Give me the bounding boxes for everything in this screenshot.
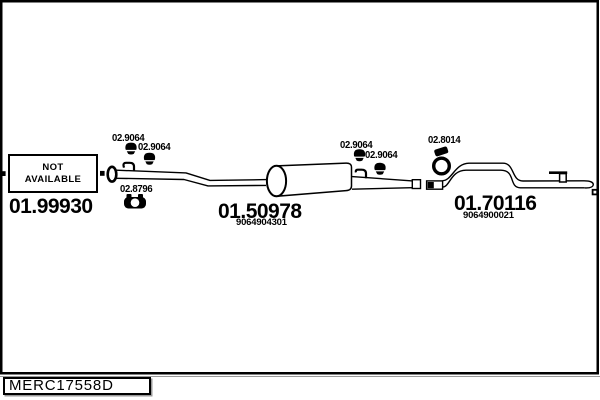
rear-tail-pipe — [443, 163, 594, 188]
rubber-hanger-icon — [125, 143, 136, 155]
connector-square-left — [2, 171, 6, 176]
fitting-label-rear-clamp: 02.8014 — [428, 136, 460, 146]
rubber-hanger-icon — [354, 149, 365, 161]
muffler-end-cap — [267, 166, 286, 197]
not-available-line2: AVAILABLE — [25, 175, 82, 184]
muffler-outlet-pipe — [352, 177, 413, 190]
rubber-hanger-icon — [374, 163, 385, 175]
rubber-hanger-icon — [144, 153, 155, 165]
drawing-code-box: MERC17558D — [3, 377, 151, 395]
part-code-front-pipe: 01.99930 — [9, 196, 93, 217]
front-hanger-rod — [124, 163, 135, 171]
front-flange — [108, 167, 117, 182]
rear-hanger-bracket — [560, 174, 567, 182]
rear-joint-square — [428, 182, 434, 188]
fitting-label-mid-hanger-2: 02.9064 — [365, 151, 397, 161]
exhaust-system-diagram: NOT AVAILABLE 02.9064 02.9064 02.8796 02… — [0, 0, 600, 400]
drawing-code: MERC17558D — [9, 379, 114, 393]
outlet-sleeve — [412, 180, 420, 189]
tail-end-square — [593, 190, 598, 195]
fitting-label-front-clamp: 02.8796 — [120, 185, 152, 195]
fitting-label-front-hanger-2: 02.9064 — [138, 143, 170, 153]
not-available-line1: NOT — [42, 163, 63, 172]
oem-ref-centre-muffler: 9064904301 — [236, 218, 287, 228]
fitting-label-mid-hanger-1: 02.9064 — [340, 141, 372, 151]
not-available-box: NOT AVAILABLE — [8, 154, 98, 193]
ring-clamp-icon — [434, 146, 450, 174]
muffler-body — [277, 163, 352, 196]
pipe-clamp-icon — [124, 194, 146, 209]
oem-ref-rear-pipe: 9064900021 — [463, 211, 514, 221]
connector-square-right — [100, 171, 105, 176]
